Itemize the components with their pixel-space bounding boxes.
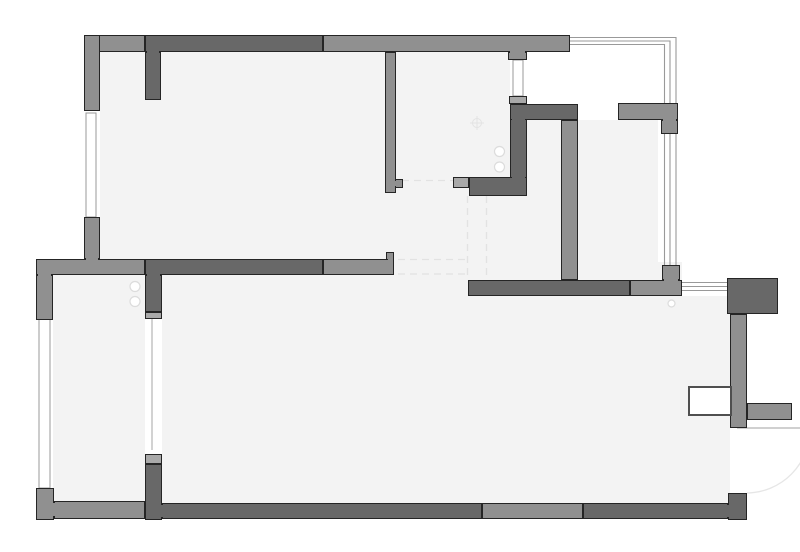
overlay-fixtures (0, 0, 800, 552)
fixture-dot-1 (495, 147, 505, 157)
fixture-dot-small (668, 300, 675, 307)
fixture-dot-4 (130, 297, 140, 307)
fixture-dot-2 (495, 162, 505, 172)
floor-plan (0, 0, 800, 552)
fixture-dot-3 (130, 282, 140, 292)
